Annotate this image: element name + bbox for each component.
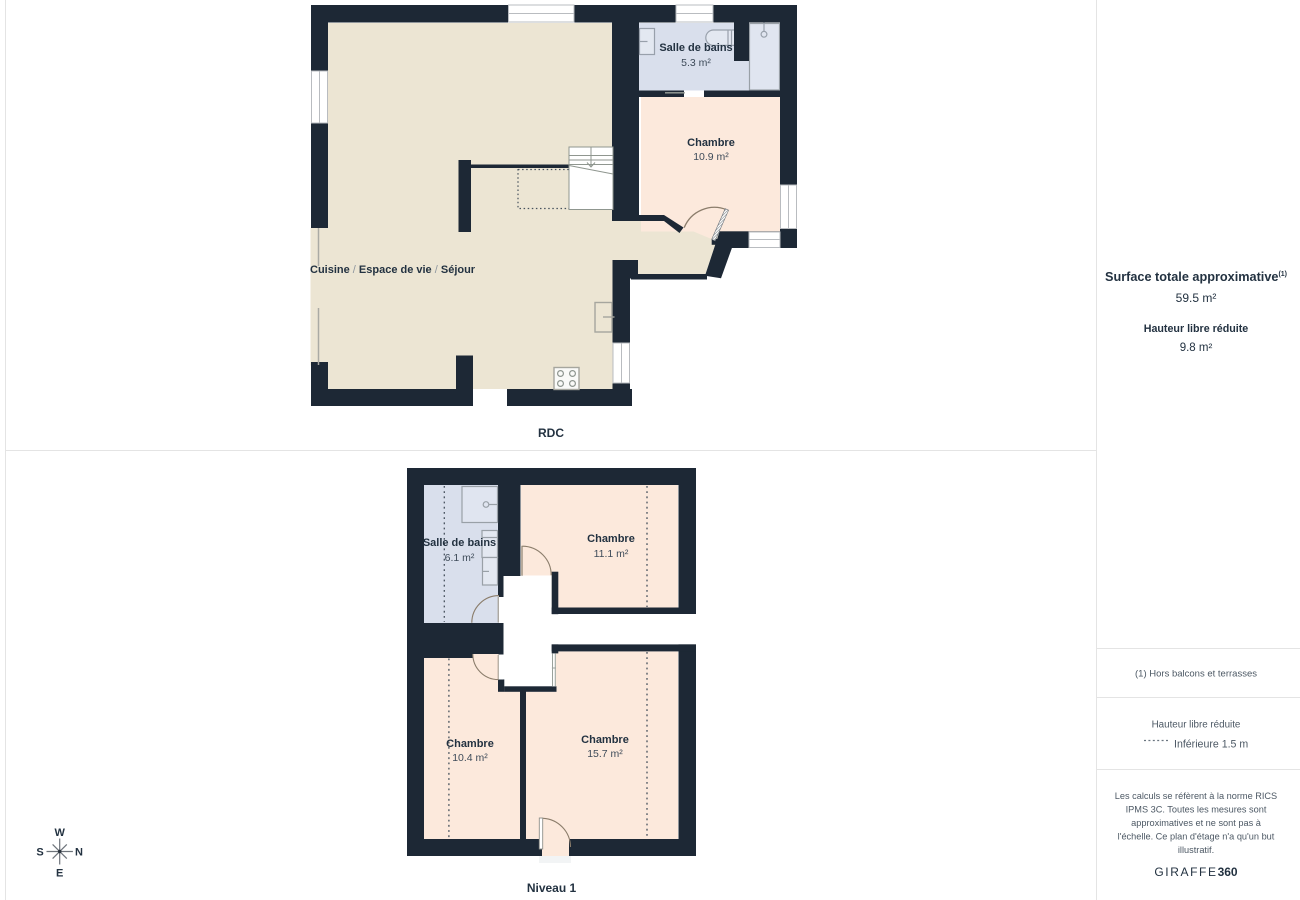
svg-text:Hauteur libre réduite: Hauteur libre réduite (1144, 323, 1249, 335)
svg-text:W: W (55, 827, 66, 839)
svg-text:Salle de bains: Salle de bains (423, 537, 496, 549)
svg-text:Chambre: Chambre (581, 734, 629, 746)
svg-text:GIRAFFE360: GIRAFFE360 (1154, 865, 1238, 879)
svg-text:l'échelle. Ce plan d'étage n'a: l'échelle. Ce plan d'étage n'a qu'un but (1118, 832, 1275, 842)
svg-text:Niveau 1: Niveau 1 (527, 881, 577, 895)
svg-text:Chambre: Chambre (687, 137, 735, 149)
svg-text:6.1 m²: 6.1 m² (445, 552, 475, 564)
svg-text:10.9 m²: 10.9 m² (693, 151, 729, 163)
svg-text:10.4 m²: 10.4 m² (452, 752, 488, 764)
svg-text:S: S (36, 847, 43, 859)
svg-text:N: N (75, 847, 83, 859)
svg-text:Cuisine / Espace de vie / Séjo: Cuisine / Espace de vie / Séjour (310, 264, 476, 276)
svg-text:approximatives et ne sont pas: approximatives et ne sont pas à (1131, 818, 1262, 828)
svg-text:15.7 m²: 15.7 m² (587, 748, 623, 760)
svg-text:5.3 m²: 5.3 m² (681, 57, 711, 69)
svg-text:(1) Hors balcons et terrasses: (1) Hors balcons et terrasses (1135, 669, 1257, 680)
svg-text:59.5 m²: 59.5 m² (1176, 291, 1217, 305)
svg-text:Inférieure 1.5 m: Inférieure 1.5 m (1174, 739, 1248, 751)
svg-text:Salle de bains: Salle de bains (659, 42, 732, 54)
svg-text:Chambre: Chambre (587, 533, 635, 545)
svg-text:Hauteur libre réduite: Hauteur libre réduite (1152, 720, 1241, 731)
svg-text:IPMS 3C. Toutes les mesures so: IPMS 3C. Toutes les mesures sont (1126, 805, 1267, 815)
svg-text:11.1 m²: 11.1 m² (594, 548, 629, 560)
svg-text:Chambre: Chambre (446, 738, 494, 750)
svg-text:illustratif.: illustratif. (1178, 845, 1214, 855)
svg-text:Surface totale approximative(1: Surface totale approximative(1) (1105, 270, 1287, 284)
svg-text:E: E (56, 868, 63, 880)
svg-text:Les calculs se réfèrent à la n: Les calculs se réfèrent à la norme RICS (1115, 791, 1277, 801)
svg-text:RDC: RDC (538, 426, 564, 440)
svg-text:9.8 m²: 9.8 m² (1180, 342, 1213, 354)
